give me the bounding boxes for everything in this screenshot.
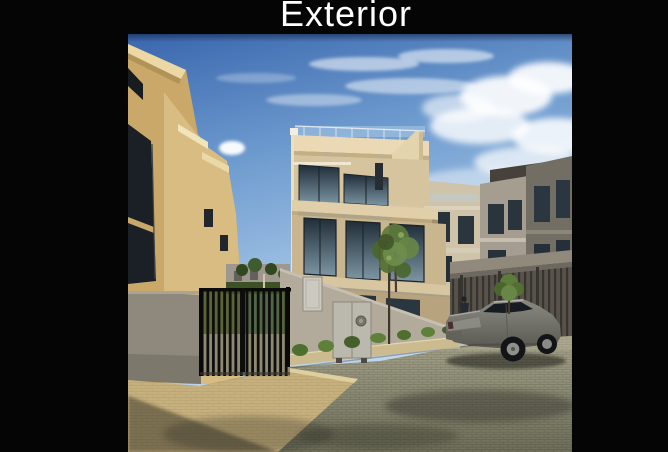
utility-cabinet-small <box>303 277 322 311</box>
slide-background: Exterior <box>0 0 668 452</box>
utility-cabinet-large <box>333 302 371 363</box>
metal-fence <box>199 287 291 376</box>
page-title: Exterior <box>0 0 668 33</box>
exterior-photo <box>128 34 572 452</box>
photo-top-vignette <box>128 34 572 42</box>
signal-pole <box>388 262 390 344</box>
